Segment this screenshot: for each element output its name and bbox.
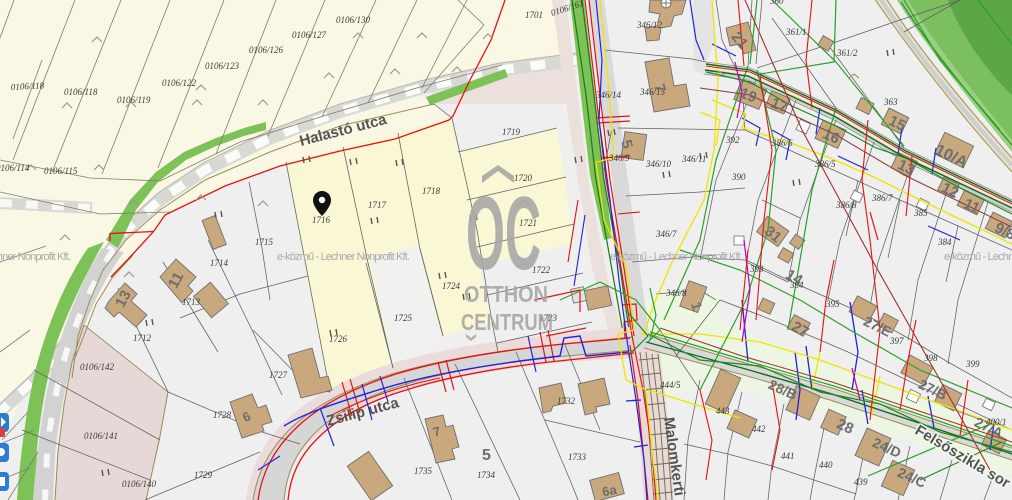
svg-text:0106/123: 0106/123 (205, 61, 240, 71)
svg-text:1727: 1727 (269, 370, 288, 380)
svg-text:0106/114: 0106/114 (0, 163, 30, 173)
svg-text:CENTRUM: CENTRUM (461, 309, 553, 335)
svg-text:346/11: 346/11 (681, 154, 706, 164)
svg-text:384: 384 (937, 237, 952, 247)
svg-text:386/7: 386/7 (871, 193, 893, 203)
svg-text:1717: 1717 (368, 200, 387, 210)
svg-text:395: 395 (825, 299, 840, 309)
svg-text:363: 363 (883, 97, 898, 107)
svg-text:1716: 1716 (312, 215, 331, 225)
svg-text:346/10: 346/10 (645, 159, 672, 169)
svg-text:0106/118: 0106/118 (64, 87, 98, 97)
svg-text:440: 440 (819, 460, 833, 470)
svg-text:1729: 1729 (194, 470, 213, 480)
svg-text:361/2: 361/2 (836, 48, 858, 58)
svg-text:1734: 1734 (477, 470, 496, 480)
svg-text:1726: 1726 (329, 334, 348, 344)
svg-text:1719: 1719 (502, 127, 521, 137)
svg-text:444/5: 444/5 (660, 380, 681, 390)
svg-text:1733: 1733 (568, 452, 587, 462)
svg-text:0106/126: 0106/126 (249, 45, 284, 55)
svg-text:e-közmű - Lechner Nonprofit Kf: e-közmű - Lechner Nonprofit Kft. (277, 251, 410, 263)
svg-text:0106/141: 0106/141 (84, 431, 118, 441)
svg-text:346/8: 346/8 (665, 288, 687, 298)
svg-text:1728: 1728 (213, 410, 232, 420)
svg-text:386/5: 386/5 (814, 159, 836, 169)
svg-text:1725: 1725 (394, 313, 413, 323)
svg-text:0106/122: 0106/122 (162, 78, 197, 88)
svg-text:1715: 1715 (255, 237, 274, 247)
svg-text:441: 441 (781, 451, 795, 461)
svg-text:0106/130: 0106/130 (336, 15, 371, 25)
svg-text:e-közmű - Lechner Nonprofit Kf: e-közmű - Lechner Nonprofit Kft. (610, 251, 743, 263)
svg-text:386/8: 386/8 (835, 200, 857, 210)
svg-text:1724: 1724 (442, 281, 461, 291)
svg-text:397: 397 (889, 336, 904, 346)
svg-text:0106/142: 0106/142 (80, 362, 115, 372)
svg-text:OC: OC (466, 176, 541, 292)
svg-text:0106/140: 0106/140 (122, 479, 157, 489)
svg-text:386/6: 386/6 (771, 138, 793, 148)
svg-text:392: 392 (725, 135, 740, 145)
svg-text:346/9: 346/9 (608, 153, 630, 163)
svg-text:442: 442 (752, 424, 766, 434)
svg-text:360: 360 (769, 0, 784, 6)
svg-text:1713: 1713 (182, 297, 201, 307)
svg-text:398: 398 (923, 353, 938, 363)
svg-text:1732: 1732 (557, 396, 576, 406)
svg-text:443: 443 (716, 406, 730, 416)
svg-text:5: 5 (482, 447, 491, 464)
svg-text:OTTHON: OTTHON (464, 281, 548, 307)
svg-text:399: 399 (965, 359, 980, 369)
svg-text:1714: 1714 (210, 258, 229, 268)
svg-text:0106/119: 0106/119 (117, 95, 151, 105)
svg-text:1712: 1712 (133, 333, 152, 343)
svg-text:1718: 1718 (422, 186, 441, 196)
svg-text:439: 439 (854, 477, 868, 487)
svg-text:361/1: 361/1 (785, 27, 807, 37)
svg-text:0106/127: 0106/127 (292, 30, 327, 40)
svg-text:e-közmű - Lechner Nonprofit Kf: e-közmű - Lechner Nonprofit Kft. (0, 251, 71, 263)
svg-text:393: 393 (749, 264, 764, 274)
svg-text:346/7: 346/7 (655, 229, 677, 239)
svg-text:346/12: 346/12 (636, 20, 663, 30)
svg-text:1701: 1701 (525, 10, 543, 20)
svg-text:390: 390 (731, 172, 746, 182)
svg-text:0106/115: 0106/115 (44, 166, 78, 176)
svg-text:1735: 1735 (414, 466, 433, 476)
svg-text:346/14: 346/14 (595, 90, 622, 100)
svg-text:0106/118: 0106/118 (11, 80, 45, 92)
svg-text:e-közmű - Lechner Nonprofit Kf: e-közmű - Lechner Nonprofit Kft. (944, 251, 1012, 263)
svg-text:385: 385 (913, 208, 928, 218)
